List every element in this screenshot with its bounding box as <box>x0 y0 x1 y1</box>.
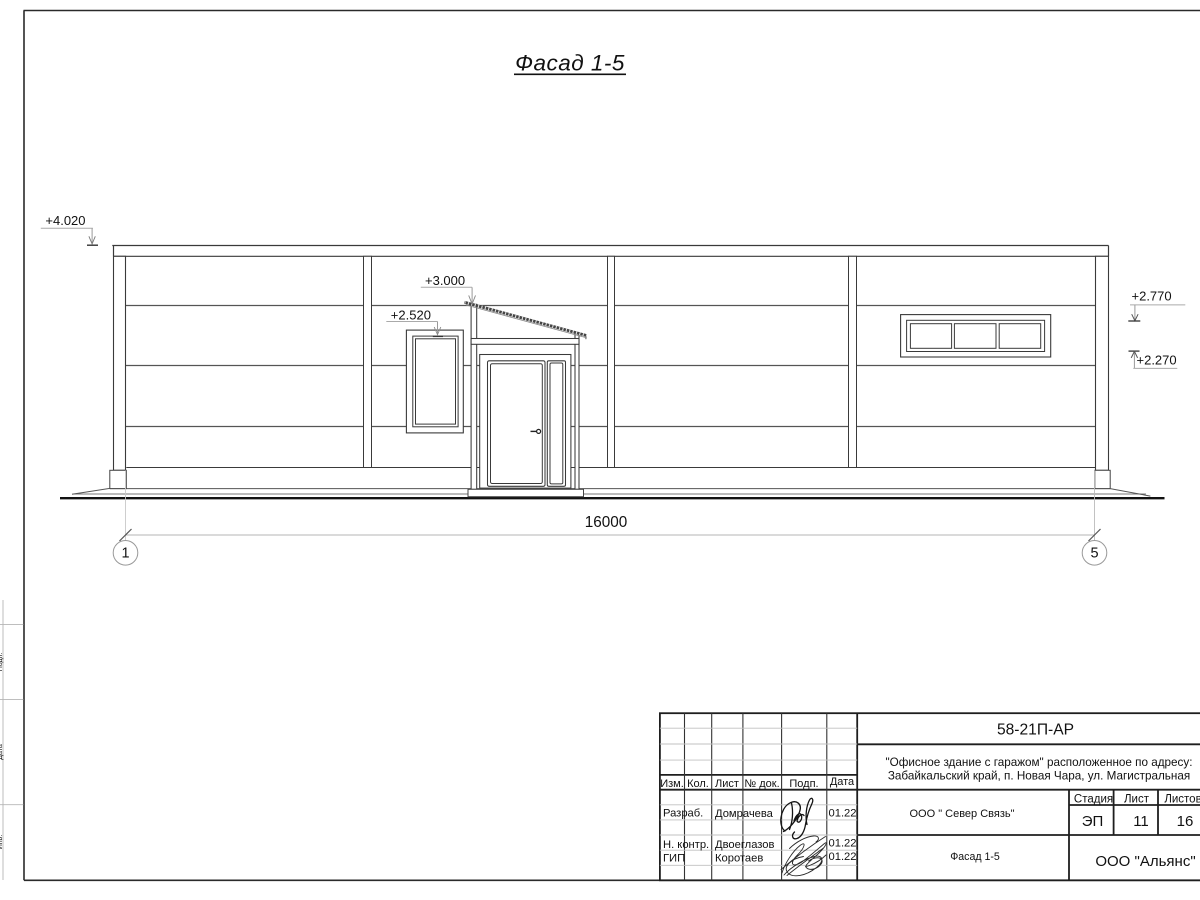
svg-text:Подп.: Подп. <box>0 653 4 672</box>
svg-text:Двоеглазов: Двоеглазов <box>715 839 775 851</box>
svg-text:ГИП: ГИП <box>663 853 685 865</box>
svg-text:Разраб.: Разраб. <box>663 808 703 820</box>
svg-text:01.22: 01.22 <box>829 851 857 863</box>
svg-text:Инв.: Инв. <box>0 835 4 850</box>
svg-text:Коротаев: Коротаев <box>715 853 763 865</box>
svg-text:Подп.: Подп. <box>789 778 818 790</box>
svg-text:01.22: 01.22 <box>829 838 857 850</box>
svg-text:16000: 16000 <box>585 514 628 531</box>
svg-text:"Офисное здание с гаражом" рас: "Офисное здание с гаражом" расположенное… <box>886 756 1193 769</box>
svg-text:Домрачева: Домрачева <box>715 808 774 820</box>
svg-text:+2.770: +2.770 <box>1132 288 1172 303</box>
svg-text:58-21П-АР: 58-21П-АР <box>997 722 1074 739</box>
svg-text:Фасад 1-5: Фасад 1-5 <box>950 851 1000 863</box>
svg-text:+2.270: +2.270 <box>1137 353 1177 368</box>
svg-text:5: 5 <box>1090 546 1098 562</box>
svg-text:1: 1 <box>121 546 129 562</box>
svg-text:Лист: Лист <box>1124 794 1150 806</box>
svg-text:Дата: Дата <box>830 776 855 788</box>
svg-text:01.22: 01.22 <box>829 808 857 820</box>
svg-text:Забайкальский край, п. Новая Ч: Забайкальский край, п. Новая Чара, ул. М… <box>888 770 1190 783</box>
svg-text:11: 11 <box>1133 813 1149 830</box>
svg-text:16: 16 <box>1177 813 1194 830</box>
svg-text:ООО " Север Связь": ООО " Север Связь" <box>909 808 1014 820</box>
svg-text:Дата: Дата <box>0 744 4 760</box>
svg-text:ЭП: ЭП <box>1082 813 1104 830</box>
svg-text:Н. контр.: Н. контр. <box>663 839 709 851</box>
svg-text:+4.020: +4.020 <box>45 213 85 228</box>
svg-text:Лист: Лист <box>715 778 739 790</box>
svg-text:Фасад 1-5: Фасад 1-5 <box>515 51 625 76</box>
svg-text:Изм.: Изм. <box>660 778 684 790</box>
svg-text:+2.520: +2.520 <box>391 307 431 322</box>
svg-text:№ док.: № док. <box>744 778 779 790</box>
svg-text:Кол.: Кол. <box>687 778 709 790</box>
svg-text:Листов: Листов <box>1164 794 1200 806</box>
svg-text:+3.000: +3.000 <box>425 273 465 288</box>
svg-text:ООО "Альянс": ООО "Альянс" <box>1095 853 1195 870</box>
svg-text:Стадия: Стадия <box>1074 794 1113 806</box>
